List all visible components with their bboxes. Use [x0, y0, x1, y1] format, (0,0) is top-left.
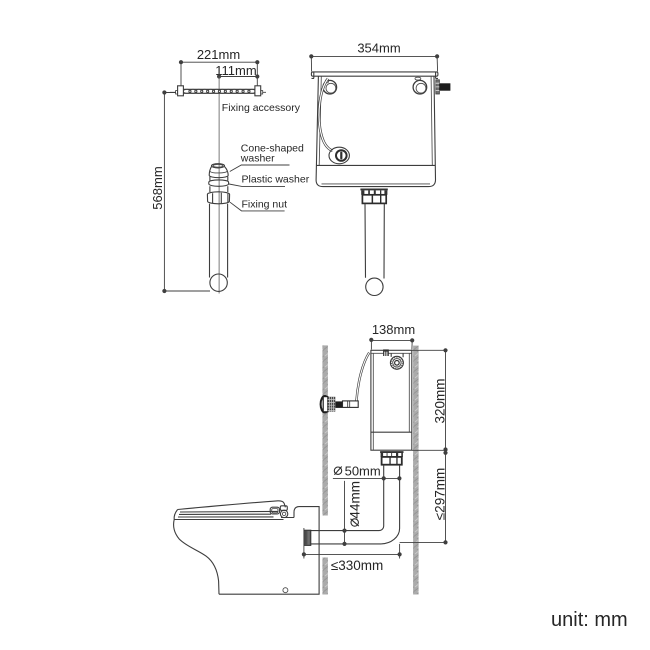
svg-text:Fixing nut: Fixing nut [242, 199, 288, 211]
svg-text:221mm: 221mm [197, 47, 240, 62]
svg-text:≤297mm: ≤297mm [432, 468, 447, 520]
svg-text:Plastic washer: Plastic washer [242, 174, 310, 186]
svg-text:50mm: 50mm [345, 464, 381, 479]
svg-text:568mm: 568mm [150, 166, 165, 209]
svg-text:138mm: 138mm [372, 322, 415, 337]
svg-text:washer: washer [240, 152, 275, 164]
svg-text:354mm: 354mm [357, 41, 400, 56]
svg-text:44mm: 44mm [348, 481, 363, 519]
svg-text:≤330mm: ≤330mm [331, 558, 383, 573]
svg-text:Fixing accessory: Fixing accessory [222, 102, 301, 114]
svg-text:111mm: 111mm [215, 63, 256, 78]
svg-text:unit: mm: unit: mm [551, 609, 628, 631]
svg-text:320mm: 320mm [432, 378, 447, 423]
